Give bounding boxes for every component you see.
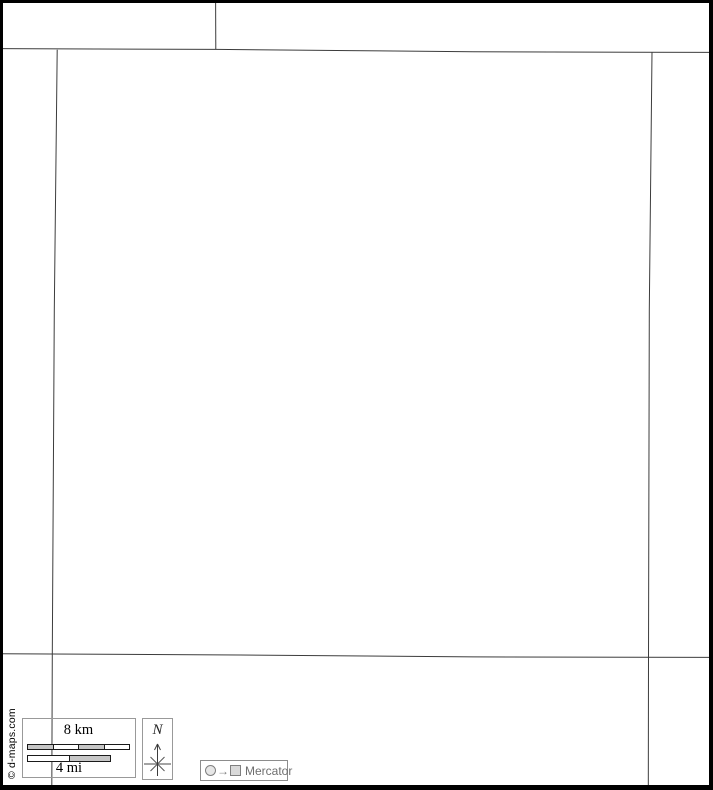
scale-bar: 8 km 4 mi [22,718,136,778]
projection-arrow-icon: → [217,765,229,777]
globe-circle-icon [205,765,216,776]
projection-label: Mercator [245,765,292,777]
scale-km-segment [54,745,80,749]
projection-legend: → Mercator [200,760,288,781]
scale-km-segment [105,745,130,749]
scale-km-label: 8 km [27,722,130,738]
scale-mi-label: 4 mi [27,760,111,776]
scale-km-segment [79,745,105,749]
projected-square-icon [230,765,241,776]
copyright-text: © d-maps.com [6,708,18,779]
scale-km-bar [27,744,130,750]
north-arrow-icon [143,741,172,778]
map-canvas: © d-maps.com 8 km 4 mi N → Mercator [0,0,713,790]
north-indicator: N [142,718,173,780]
map-boundaries [0,0,713,790]
scale-km-segment [28,745,54,749]
north-label: N [143,721,172,739]
